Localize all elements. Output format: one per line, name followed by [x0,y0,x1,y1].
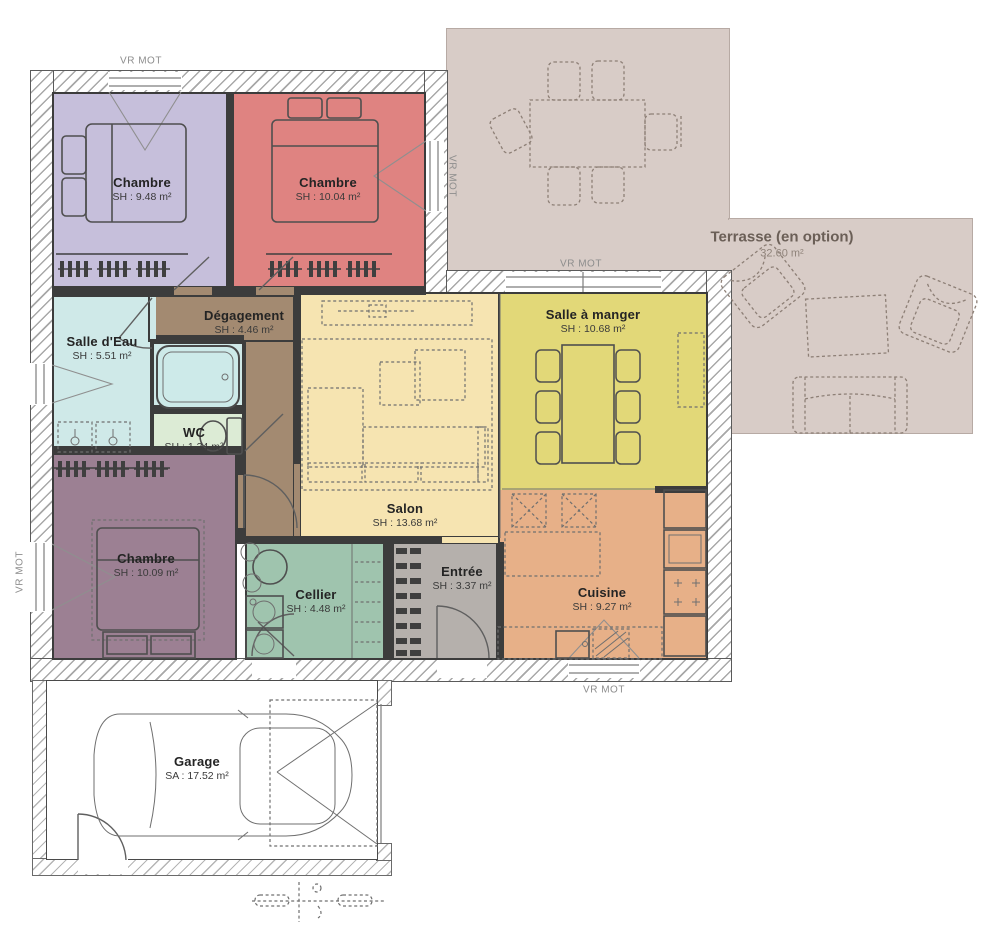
room-name: Chambre [114,551,179,566]
partition-cellier-entree [385,542,392,660]
label-cuisine: Cuisine SH : 9.27 m² [573,585,632,613]
room-name: Salon [373,501,438,516]
garage-wall-right-top [376,680,392,706]
label-wc: WC SH : 1.34 m² [165,425,224,453]
cellier-garage-door-opening [252,660,296,678]
room-area: 32.60 m² [710,248,853,260]
shutter-label-dining: VR MOT [560,259,602,270]
partition-bath-alcove-top [152,335,244,342]
room-name: Salle d'Eau [66,334,137,349]
room-name: Entrée [433,564,492,579]
room-area: SA : 17.52 m² [165,770,229,782]
window-salle-a-manger [505,272,662,292]
room-salle-deau-alcove [152,342,244,412]
label-chambre-1: Chambre SH : 9.48 m² [113,175,172,203]
terrace-area-top [446,28,730,274]
partition-entree-cuisine [496,542,504,660]
room-name: Cuisine [573,585,632,600]
room-area: SH : 10.04 m² [296,191,361,203]
label-degagement: Dégagement SH : 4.46 m² [204,308,284,336]
front-door-opening [437,660,487,678]
shutter-label-kitchen: VR MOT [583,685,625,696]
garage-wall-right-bottom [376,843,392,861]
window-chambre-3 [30,542,52,612]
room-area: SH : 1.34 m² [165,441,224,453]
label-cellier: Cellier SH : 4.48 m² [287,587,346,615]
room-name: Terrasse (en option) [710,229,853,246]
label-salle-deau: Salle d'Eau SH : 5.51 m² [66,334,137,362]
room-area: SH : 13.68 m² [373,517,438,529]
exterior-wall-top [30,70,448,94]
room-cuisine [500,490,708,660]
room-salle-deau [52,295,152,453]
room-area: SH : 4.46 m² [204,324,284,336]
door-gap-chambre-1 [174,287,212,295]
room-area: SH : 9.27 m² [573,601,632,613]
partition-wc-top [152,405,244,412]
exterior-wall-right [706,270,732,682]
room-name: Dégagement [204,308,284,323]
shutter-label-right: VR MOT [447,155,458,197]
door-gap-chambre-2 [256,287,294,295]
shutter-label-left: VR MOT [15,551,26,593]
door-gap-chambre-3 [238,475,243,528]
room-area: SH : 10.68 m² [546,323,641,335]
room-name: Cellier [287,587,346,602]
label-salle-a-manger: Salle à manger SH : 10.68 m² [546,307,641,335]
window-chambre-2 [426,140,444,212]
bicycles-icon [252,882,385,922]
room-name: WC [165,425,224,440]
room-name: Salle à manger [546,307,641,322]
room-name: Garage [165,754,229,769]
shutter-label-top: VR MOT [120,56,162,67]
partition-bedrooms [226,92,234,288]
room-area: SH : 10.09 m² [114,567,179,579]
room-area: SH : 5.51 m² [66,350,137,362]
label-chambre-3: Chambre SH : 10.09 m² [114,551,179,579]
opening-corridor-salon [294,464,300,536]
label-entree: Entrée SH : 3.37 m² [433,564,492,592]
door-gap-salle-deau [150,297,156,339]
partition-cuisine-dining-stub [655,486,708,493]
label-terrasse: Terrasse (en option) 32.60 m² [710,229,853,260]
garage-side-door-opening [78,858,128,874]
room-name: Chambre [296,175,361,190]
floor-plan: Chambre SH : 9.48 m² Chambre SH : 10.04 … [0,0,1000,951]
window-salle-deau [30,363,52,405]
room-area: SH : 4.48 m² [287,603,346,615]
room-area: SH : 3.37 m² [433,580,492,592]
partition-below-bedrooms [52,286,426,295]
room-degagement-corridor [244,342,297,542]
window-chambre-1 [108,72,182,90]
opening-salon-entree [442,537,498,543]
room-area: SH : 9.48 m² [113,191,172,203]
window-cuisine [568,660,640,678]
room-entree [392,542,500,660]
label-chambre-2: Chambre SH : 10.04 m² [296,175,361,203]
label-salon: Salon SH : 13.68 m² [373,501,438,529]
room-name: Chambre [113,175,172,190]
label-garage: Garage SA : 17.52 m² [165,754,229,782]
